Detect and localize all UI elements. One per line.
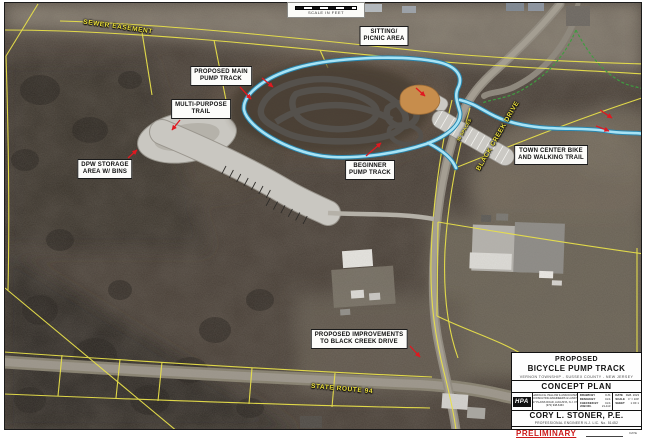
label-sitting-picnic-area: SITTING/ PICNIC AREA: [360, 26, 409, 46]
title-block: PROPOSED BICYCLE PUMP TRACK VERNON TOWNS…: [511, 352, 642, 430]
firm-logo: HPA: [512, 393, 533, 410]
label-dpw-storage: DPW STORAGE AREA W/ BINS: [77, 159, 132, 179]
title-block-info-row: HPA HAROLD E. PELLOW & ASSOCIATES, INC. …: [512, 393, 641, 411]
signature-line: [586, 429, 623, 437]
scale-bar: SCALE IN FEET: [287, 2, 365, 18]
preliminary-row: PRELIMINARY DATE: [512, 426, 641, 440]
label-black-creek-improvements: PROPOSED IMPROVEMENTS TO BLACK CREEK DRI…: [311, 329, 408, 349]
scale-bar-caption: SCALE IN FEET: [288, 10, 364, 15]
sheet-fields: DATEFEB. 2023 SCALE1" = 100' SHEET1 OF 1: [613, 393, 641, 410]
plan-type: CONCEPT PLAN: [512, 380, 641, 393]
project-line2: BICYCLE PUMP TRACK: [512, 364, 641, 374]
firm-address: HAROLD E. PELLOW & ASSOCIATES, INC. CONS…: [533, 393, 578, 410]
project-municipality: VERNON TOWNSHIP - SUSSEX COUNTY - NEW JE…: [512, 374, 641, 380]
concept-plan-sheet: { "scale_bar": { "caption": "SCALE IN FE…: [0, 0, 646, 432]
title-block-project: PROPOSED BICYCLE PUMP TRACK VERNON TOWNS…: [512, 353, 641, 380]
label-town-center-trail: TOWN CENTER BIKE AND WALKING TRAIL: [514, 145, 588, 165]
project-line1: PROPOSED: [512, 355, 641, 364]
label-proposed-main-pump-track: PROPOSED MAIN PUMP TRACK: [190, 66, 252, 86]
engineer-name: CORY L. STONER, P.E.: [512, 411, 641, 421]
engineer-block: CORY L. STONER, P.E. PROFESSIONAL ENGINE…: [512, 411, 641, 426]
label-multi-purpose-trail: MULTI-PURPOSE TRAIL: [171, 99, 231, 119]
drafting-fields: DRAWN BYKJS DESIGN BYCLS CHECKED BYCLS J…: [578, 393, 613, 410]
preliminary-stamp: PRELIMINARY: [516, 429, 576, 438]
firm-logo-text: HPA: [513, 397, 531, 407]
dirt-jump-area: [400, 85, 440, 114]
label-beginner-pump-track: BEGINNER PUMP TRACK: [345, 160, 395, 180]
